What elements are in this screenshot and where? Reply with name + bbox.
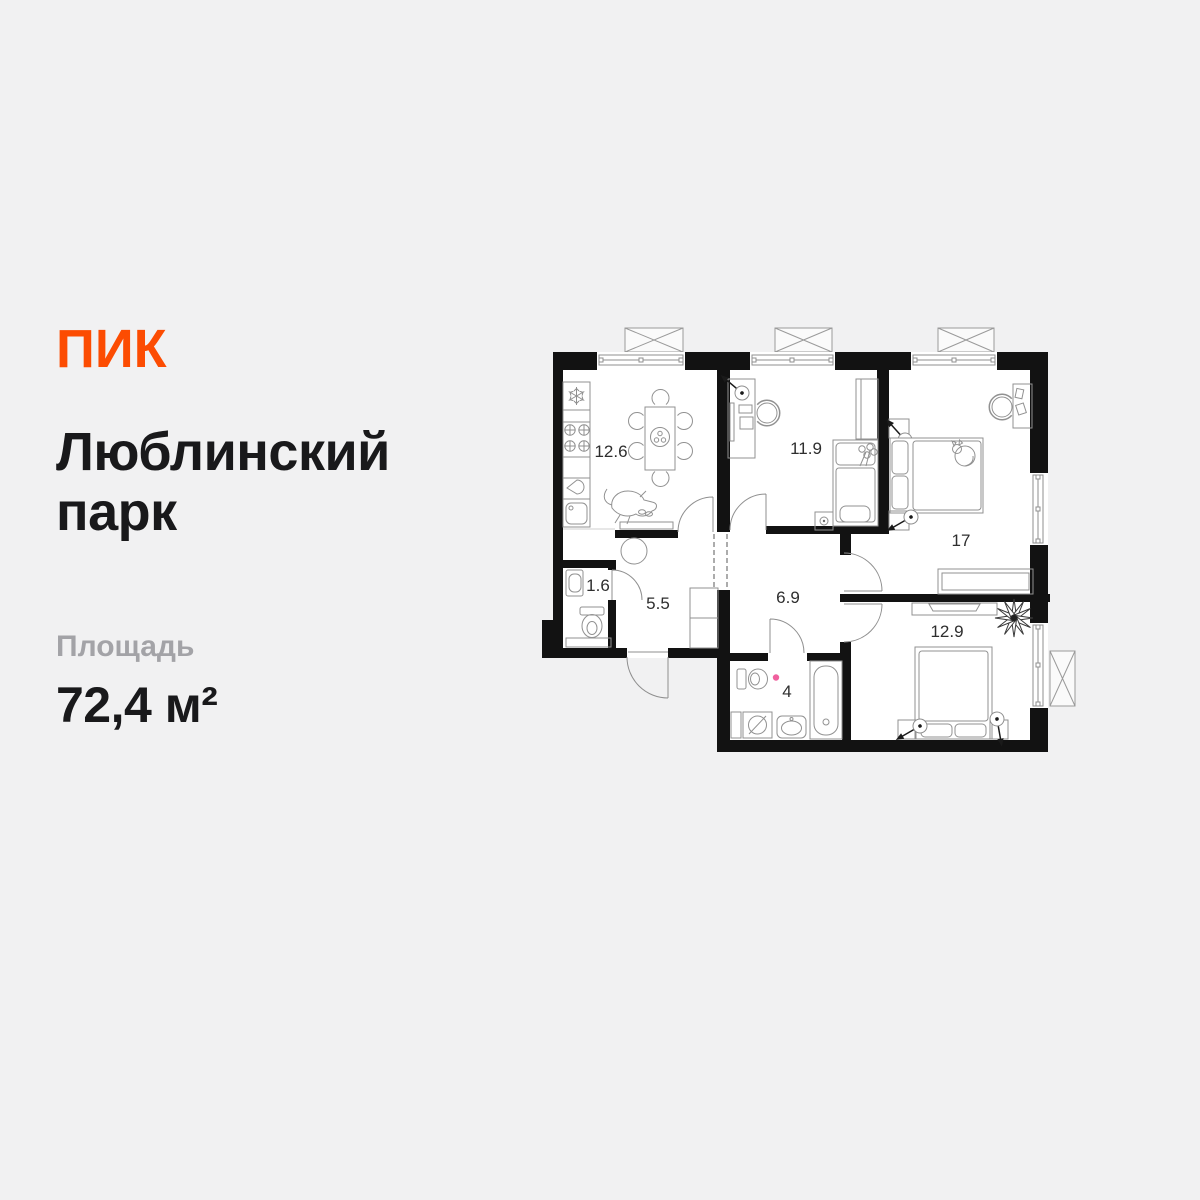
project-title-line1: Люблинский <box>56 422 390 482</box>
ac-box-icon <box>625 328 683 352</box>
ac-box-icon <box>775 328 832 352</box>
area-label: Площадь <box>56 630 486 664</box>
room-label-wc: 1.6 <box>586 576 610 595</box>
window-bedroom2-top-icon <box>911 352 997 370</box>
project-title: Люблинский парк <box>56 422 486 542</box>
room-label-bedroom-2: 17 <box>952 531 971 550</box>
accent-dot <box>773 674 779 680</box>
room-label-kitchen: 12.6 <box>594 442 627 461</box>
ac-box-icon <box>938 328 994 352</box>
room-label-bedroom-3: 12.9 <box>930 622 963 641</box>
room-label-bathroom: 4 <box>782 682 791 701</box>
room-label-bedroom-1: 11.9 <box>790 439 822 458</box>
area-value: 72,4 м² <box>56 676 486 734</box>
floor-plan: 12.6 11.9 17 1.6 5.5 6.9 4 12.9 <box>520 315 1090 760</box>
listing-info: ПИК Люблинский парк Площадь 72,4 м² <box>56 322 486 734</box>
room-label-hallway: 5.5 <box>646 594 670 613</box>
window-bedroom2-right-icon <box>1030 473 1048 545</box>
door-entrance <box>627 652 668 698</box>
floor-plan-svg: 12.6 11.9 17 1.6 5.5 6.9 4 12.9 <box>520 315 1090 760</box>
ac-box-icon <box>1050 651 1075 706</box>
window-bedroom1-icon <box>750 352 835 370</box>
room-label-corridor: 6.9 <box>776 588 800 607</box>
window-bedroom3-right-icon <box>1030 623 1048 708</box>
pik-logo: ПИК <box>56 322 486 376</box>
window-kitchen-icon <box>597 352 685 370</box>
project-title-line2: парк <box>56 482 177 542</box>
